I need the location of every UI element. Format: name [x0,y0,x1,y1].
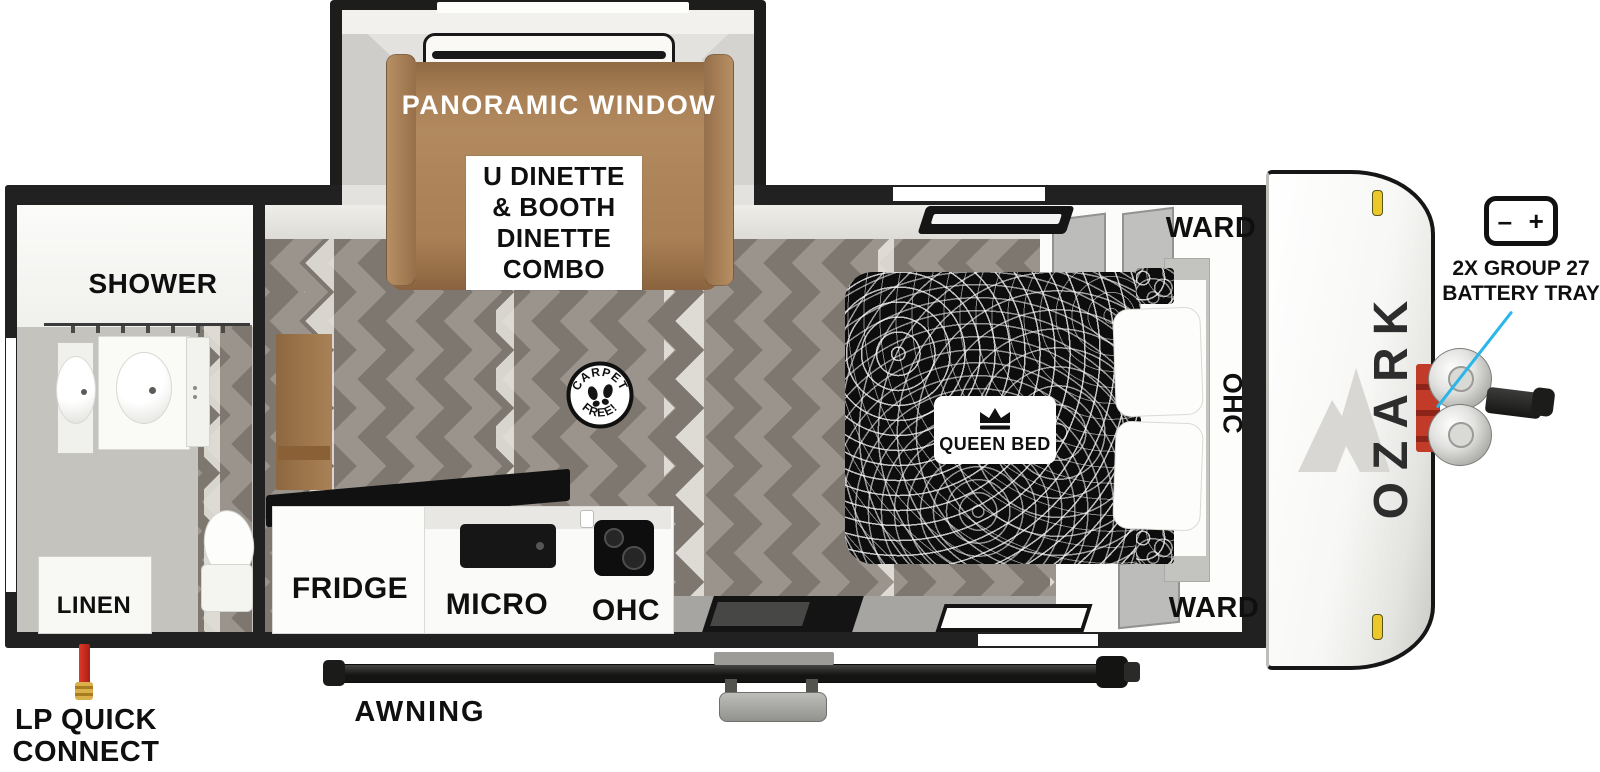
bedroom-side-window [935,604,1092,632]
entry-door-mat-inner [710,602,810,626]
shower-label: SHOWER [60,268,246,300]
dinette-label-line: COMBO [503,254,605,285]
entry-door-mat [702,596,864,632]
top-wall-window-opening [893,187,1045,201]
roof-vent-glass [931,214,1062,224]
kettle [580,510,594,528]
bedroom-ohc-label: OHC [1217,358,1248,450]
sink-drain [81,389,87,395]
bottom-wall-window-opening [978,634,1098,646]
dinette-label-box: U DINETTE & BOOTH DINETTE COMBO [466,156,642,290]
wall-shelf [276,334,332,490]
battery-plus-sign: + [1529,206,1545,237]
queen-bed-label-box: QUEEN BED [934,396,1056,464]
slideout-exterior-window [437,2,689,13]
shower-curtain-rings [50,326,246,333]
toilet-tank [201,564,253,612]
cabinet-hinge-dots [193,386,197,390]
step-bracket [714,652,834,665]
pillow [1112,420,1204,531]
battery-tray-callout-line: BATTERY TRAY [1441,281,1600,306]
clearance-light-bottom [1372,614,1383,640]
cooktop [594,520,654,576]
dinette-armrest-right [704,54,734,286]
tongue-jack-knob [1530,387,1555,417]
ward-top-label: WARD [1156,212,1266,245]
microwave-knob [536,542,544,550]
blanket-wrap-bottom [1136,528,1174,564]
kitchen-ohc-label: OHC [566,594,686,628]
battery-tray-callout-line: 2X GROUP 27 [1441,256,1600,281]
dinette-armrest-left [386,54,416,286]
lp-label-line: CONNECT [0,736,172,768]
battery-tray-callout: 2X GROUP 27 BATTERY TRAY [1441,256,1600,306]
carpet-free-badge: CARPET FREE! [566,361,634,429]
wall-shelf-edge [278,446,330,460]
awning-label: AWNING [340,696,500,729]
shower-area [17,205,253,327]
clearance-light-top [1372,190,1383,216]
lp-quick-connect-label: LP QUICK CONNECT [0,704,172,768]
brand-logo-text: OZARK [1364,244,1420,564]
ward-bottom-label: WARD [1158,592,1270,625]
lp-label-line: LP QUICK [0,704,172,736]
panoramic-window-bar [432,51,666,59]
bathroom-sink-small [56,356,96,424]
battery-icon: – + [1484,196,1558,246]
burner [604,528,624,548]
lp-pipe [79,644,90,684]
battery-minus-sign: – [1498,206,1513,237]
awning-knob [1124,662,1140,682]
microwave [460,524,556,568]
queen-bed-label: QUEEN BED [939,434,1051,455]
blanket-wrap-top [1136,268,1174,304]
tank-valve [1448,422,1474,448]
linen-label: LINEN [38,592,150,620]
lp-fitting [75,682,93,700]
burner [622,546,646,570]
crown-icon [974,406,1016,432]
dinette-label-line: U DINETTE [483,161,625,192]
panoramic-window-label: PANORAMIC WINDOW [396,90,722,121]
micro-label: MICRO [418,588,576,622]
roof-vent [917,206,1074,234]
bathroom-cabinet [186,337,210,447]
left-wall-window-opening [6,338,16,592]
fridge-label: FRIDGE [272,572,428,606]
bathroom-sink-large [116,352,172,424]
entry-step [719,692,827,722]
sink-drain [149,387,156,394]
rv-floorplan: SHOWER LINEN FRIDGE MICRO OHC [0,0,1600,772]
slideout-ceiling [342,10,754,34]
pillow [1112,306,1204,417]
dinette-label-line: DINETTE [497,223,612,254]
awning-end-cap-left [323,660,345,686]
dinette-label-line: & BOOTH [492,192,615,223]
